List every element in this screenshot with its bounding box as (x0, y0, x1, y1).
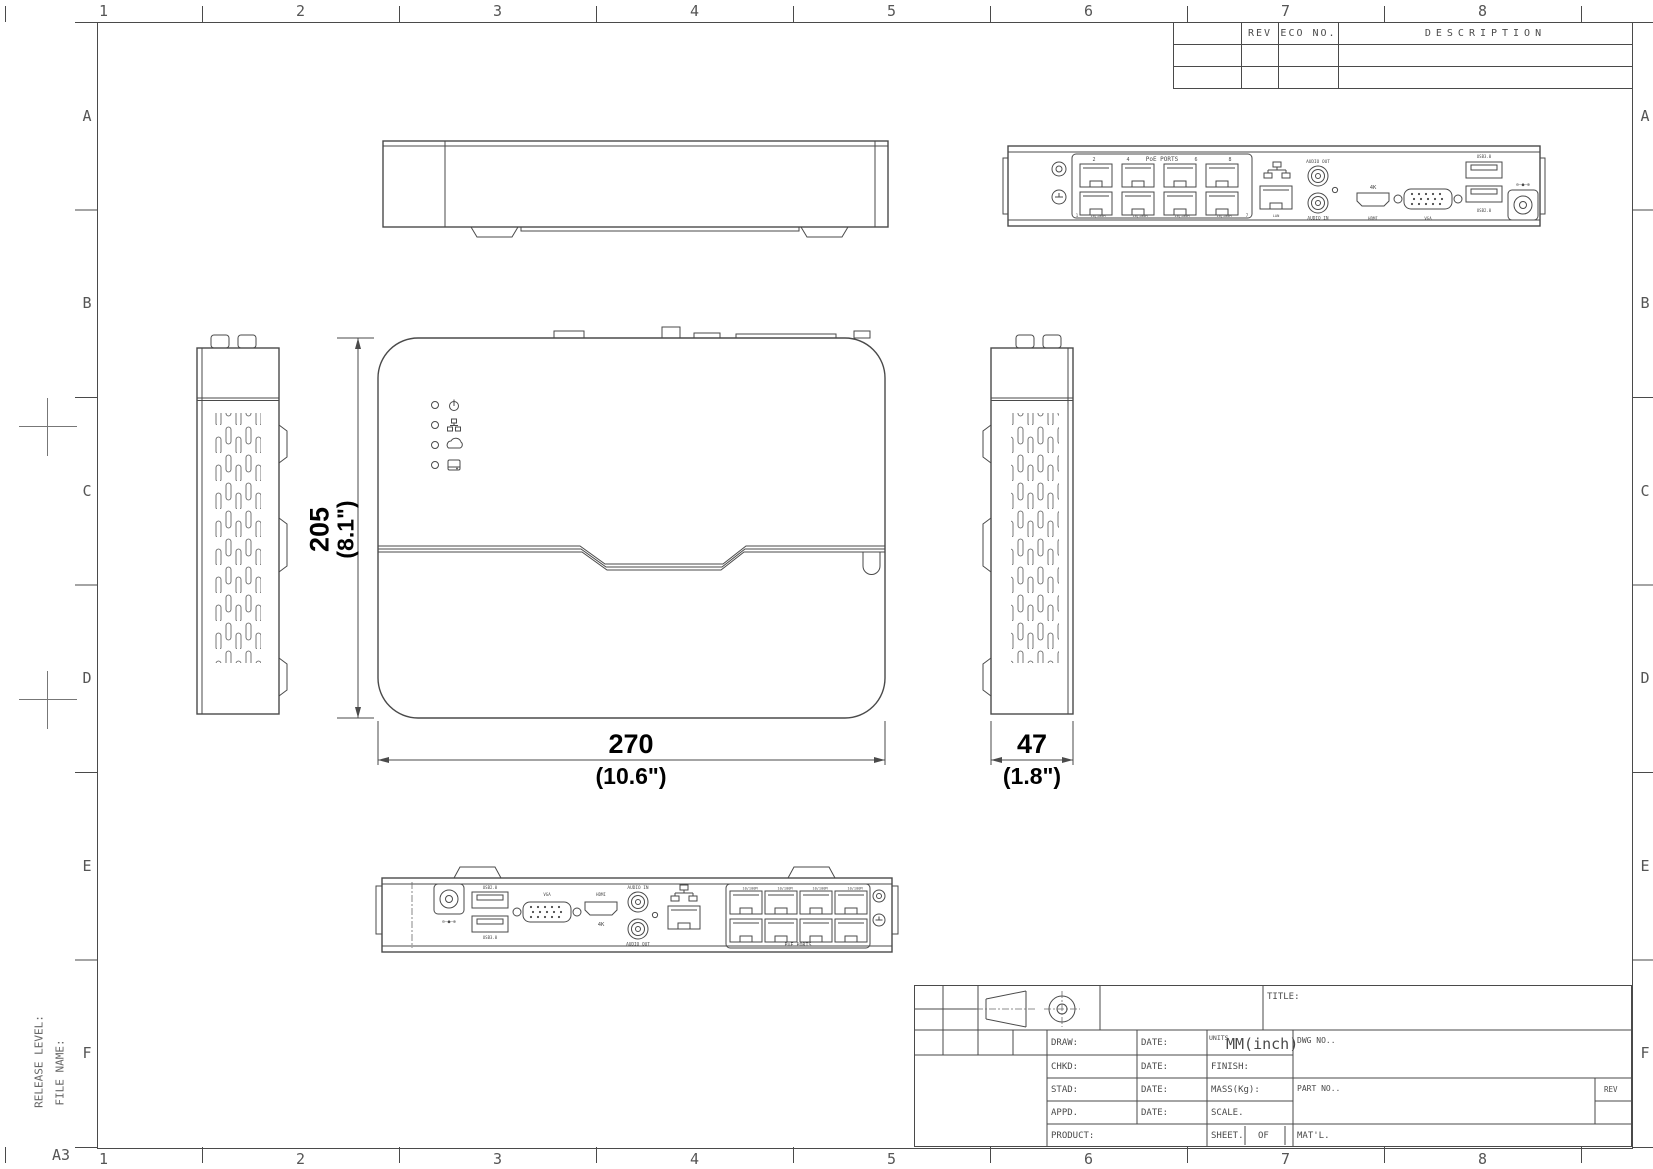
zone-label: 2 (202, 1, 399, 21)
zone-label: D (1636, 585, 1653, 773)
eco-no-header: ECO NO. (1279, 22, 1339, 44)
height-dimension-inch: (8.1") (333, 495, 360, 565)
zone-label: 1 (5, 1, 202, 21)
mount-ear (1003, 158, 1008, 214)
right-side-view (975, 313, 1087, 721)
rev-label: REV (1604, 1085, 1618, 1094)
width-dimension-mm: 270 (581, 729, 681, 760)
zone-label: 8 (1384, 1, 1581, 21)
port-speed-label: 10/100M (1090, 214, 1106, 218)
led-indicators (432, 400, 463, 471)
rev-table-corner-cell (1174, 22, 1242, 44)
vga-port: VGA (1394, 189, 1462, 221)
zone-rows-right: ABCDEF (1636, 22, 1653, 1147)
port-number: 7 (1246, 213, 1249, 218)
zone-label: 1 (5, 1149, 202, 1169)
zone-label: 8 (1384, 1149, 1581, 1169)
hdd-led-icon (448, 460, 460, 470)
port-speed-label: 10/100M (847, 887, 863, 891)
zone-label: E (1636, 772, 1653, 960)
date-label: DATE: (1141, 1062, 1168, 1072)
lan-label: LAN (1273, 214, 1280, 218)
audio-jacks: AUDIO IN AUDIO OUT (626, 885, 657, 948)
depth-dimension-mm: 47 (997, 729, 1067, 760)
poe-port-block: PoE PORTS 2 4 6 8 1 10/100M 10/100M 10/1… (1072, 154, 1252, 218)
lid-seam (378, 546, 885, 570)
latch-cutout (863, 552, 880, 575)
ground-screw-icon (873, 890, 885, 926)
hdmi-4k-label: 4K (1370, 185, 1377, 191)
sheet-label: SHEET. (1211, 1131, 1244, 1141)
poe-ports-label: PoE PORTS (1146, 156, 1179, 163)
zone-label: F (1636, 960, 1653, 1148)
vga-label: VGA (543, 892, 551, 897)
poe-port-block: 10/100M 10/100M 10/100M 10/100M PoE PORT… (726, 884, 870, 949)
vent-slots (213, 413, 261, 663)
ground-screw-icon (1052, 162, 1066, 204)
hdmi-port: HDMI 4K (585, 892, 617, 928)
zone-label: C (78, 397, 96, 585)
rev-row-cell (1279, 44, 1339, 66)
zone-columns-top: 12345678 (5, 1, 1581, 21)
audio-out-label: AUDIO OUT (1306, 159, 1330, 165)
audio-in-label: AUDIO IN (1307, 216, 1329, 222)
mount-ear (376, 886, 382, 934)
rev-row-cell (1242, 66, 1279, 88)
port-number: 8 (1228, 157, 1231, 163)
hdmi-label: HDMI (596, 892, 606, 897)
usb-ports: USB3.0 USB2.0 (1466, 154, 1502, 213)
usb3-label: USB3.0 (1477, 154, 1492, 159)
drawing-sheet: 12345678 12345678 ABCDEF ABCDEF REV ECO … (0, 0, 1653, 1169)
cloud-led-icon (447, 438, 462, 448)
title-block: TITLE: DRAW: DATE: UNITS MM(inch) DWG NO… (914, 985, 1632, 1147)
matl-label: MAT'L. (1297, 1131, 1330, 1141)
zone-label: C (1636, 397, 1653, 585)
hdmi-label: HDMI (1368, 216, 1378, 221)
dc-power-jack: ⊖–●–⊕ (1508, 183, 1538, 220)
of-label: OF (1258, 1131, 1269, 1141)
usb2-label: USB2.0 (483, 885, 498, 890)
polarity-icon: ⊖–●–⊕ (442, 920, 456, 925)
date-label: DATE: (1141, 1085, 1168, 1095)
rev-row-cell (1279, 66, 1339, 88)
left-side-view (183, 313, 295, 721)
mount-ear (1540, 158, 1545, 214)
zone-label: 3 (399, 1149, 596, 1169)
vga-port: VGA (513, 892, 581, 922)
date-label: DATE: (1141, 1038, 1168, 1048)
zone-label: A (1636, 22, 1653, 210)
port-number: 1 (1076, 213, 1079, 218)
mass-label: MASS(Kg): (1211, 1085, 1260, 1095)
top-view (376, 326, 890, 722)
port-speed-label: 10/100M (1174, 214, 1190, 218)
top-connector (1043, 335, 1061, 348)
zone-label: 2 (202, 1149, 399, 1169)
rev-header: REV (1242, 22, 1279, 44)
zone-label: 4 (596, 1149, 793, 1169)
bottom-rear-view: ⊖–●–⊕ USB2.0 USB3.0 VGA HDMI 4K AUDIO IN (376, 858, 901, 962)
stad-label: STAD: (1051, 1085, 1078, 1095)
audio-in-label: AUDIO IN (627, 885, 649, 891)
poe-ports-label: PoE PORTS (784, 943, 811, 949)
zone-label: B (1636, 210, 1653, 398)
release-level-label: RELEASE LEVEL: (33, 1014, 46, 1110)
rev-row-cell (1339, 44, 1633, 66)
sheet-format-label: A3 (52, 1146, 70, 1164)
zone-label: 5 (793, 1, 990, 21)
mount-ear (892, 886, 898, 934)
network-icon (1264, 162, 1290, 178)
draw-label: DRAW: (1051, 1038, 1078, 1048)
rev-row-cell (1339, 66, 1633, 88)
front-view (381, 135, 893, 243)
units-value: MM(inch) (1226, 1035, 1298, 1053)
product-label: PRODUCT: (1051, 1131, 1094, 1141)
zone-label: 3 (399, 1, 596, 21)
zone-label: A (78, 22, 96, 210)
part-no-label: PART NO.. (1297, 1084, 1340, 1093)
network-icon (671, 885, 697, 901)
file-name-label: FILE NAME: (54, 1038, 67, 1108)
appd-label: APPD. (1051, 1108, 1078, 1118)
port-speed-label: 10/100M (1216, 214, 1232, 218)
rev-row-cell (1242, 44, 1279, 66)
audio-out-label: AUDIO OUT (626, 942, 650, 948)
port-number: 6 (1194, 157, 1197, 163)
lan-port: LAN (1260, 162, 1292, 218)
top-connector (1016, 335, 1034, 348)
date-label: DATE: (1141, 1108, 1168, 1118)
port-speed-label: 10/100M (742, 887, 758, 891)
zone-label: 6 (990, 1, 1187, 21)
zone-label: B (78, 210, 96, 398)
dc-power-jack: ⊖–●–⊕ (434, 884, 464, 925)
zone-rows-left: ABCDEF (78, 22, 96, 1147)
usb3-label: USB3.0 (483, 935, 498, 940)
rear-view: PoE PORTS 2 4 6 8 1 10/100M 10/100M 10/1… (1002, 136, 1547, 238)
port-number: 4 (1126, 157, 1129, 163)
hdmi-4k-label: 4K (598, 922, 605, 928)
zone-label: 5 (793, 1149, 990, 1169)
side-tabs (983, 425, 991, 696)
registration-cross-icon (19, 398, 77, 456)
depth-dimension-inch: (1.8") (992, 763, 1072, 790)
usb-ports: USB2.0 USB3.0 (472, 885, 508, 940)
port-number: 2 (1092, 157, 1095, 163)
power-led-icon (450, 400, 459, 411)
zone-label: 7 (1187, 1149, 1384, 1169)
polarity-icon: ⊖–●–⊕ (1516, 183, 1530, 188)
rev-row-cell (1174, 44, 1242, 66)
zone-label: F (78, 960, 96, 1148)
port-speed-label: 10/100M (812, 887, 828, 891)
zone-label: D (78, 585, 96, 773)
usb2-label: USB2.0 (1477, 208, 1492, 213)
finish-label: FINISH: (1211, 1062, 1249, 1072)
registration-cross-icon (19, 671, 77, 729)
front-foot (454, 867, 835, 878)
lan-port (668, 885, 700, 929)
port-speed-label: 10/100M (1132, 214, 1148, 218)
zone-label: E (78, 772, 96, 960)
zone-label: 7 (1187, 1, 1384, 21)
top-connector (238, 335, 256, 348)
vent-slots (1011, 413, 1059, 663)
zone-label: 4 (596, 1, 793, 21)
network-led-icon (448, 419, 461, 431)
zone-columns-bottom: 12345678 (5, 1149, 1581, 1169)
rev-row-cell (1174, 66, 1242, 88)
rear-connector-bumps (554, 327, 870, 338)
vga-label: VGA (1424, 216, 1432, 221)
title-label: TITLE: (1267, 992, 1300, 1002)
hdmi-port: 4K HDMI (1357, 185, 1389, 221)
height-dimension-mm: 205 (305, 506, 336, 554)
description-header: DESCRIPTION (1339, 22, 1633, 44)
zone-label: 6 (990, 1149, 1187, 1169)
side-tabs (279, 425, 287, 696)
dwg-no-label: DWG NO.. (1297, 1036, 1336, 1045)
top-connector (211, 335, 229, 348)
audio-jacks: AUDIO OUT AUDIO IN (1306, 159, 1337, 222)
projection-symbol-icon (976, 991, 1080, 1027)
width-dimension-inch: (10.6") (581, 763, 681, 790)
front-foot (471, 227, 848, 237)
port-speed-label: 10/100M (777, 887, 793, 891)
chkd-label: CHKD: (1051, 1062, 1078, 1072)
revision-table: REV ECO NO. DESCRIPTION (1173, 22, 1633, 89)
scale-label: SCALE. (1211, 1108, 1244, 1118)
